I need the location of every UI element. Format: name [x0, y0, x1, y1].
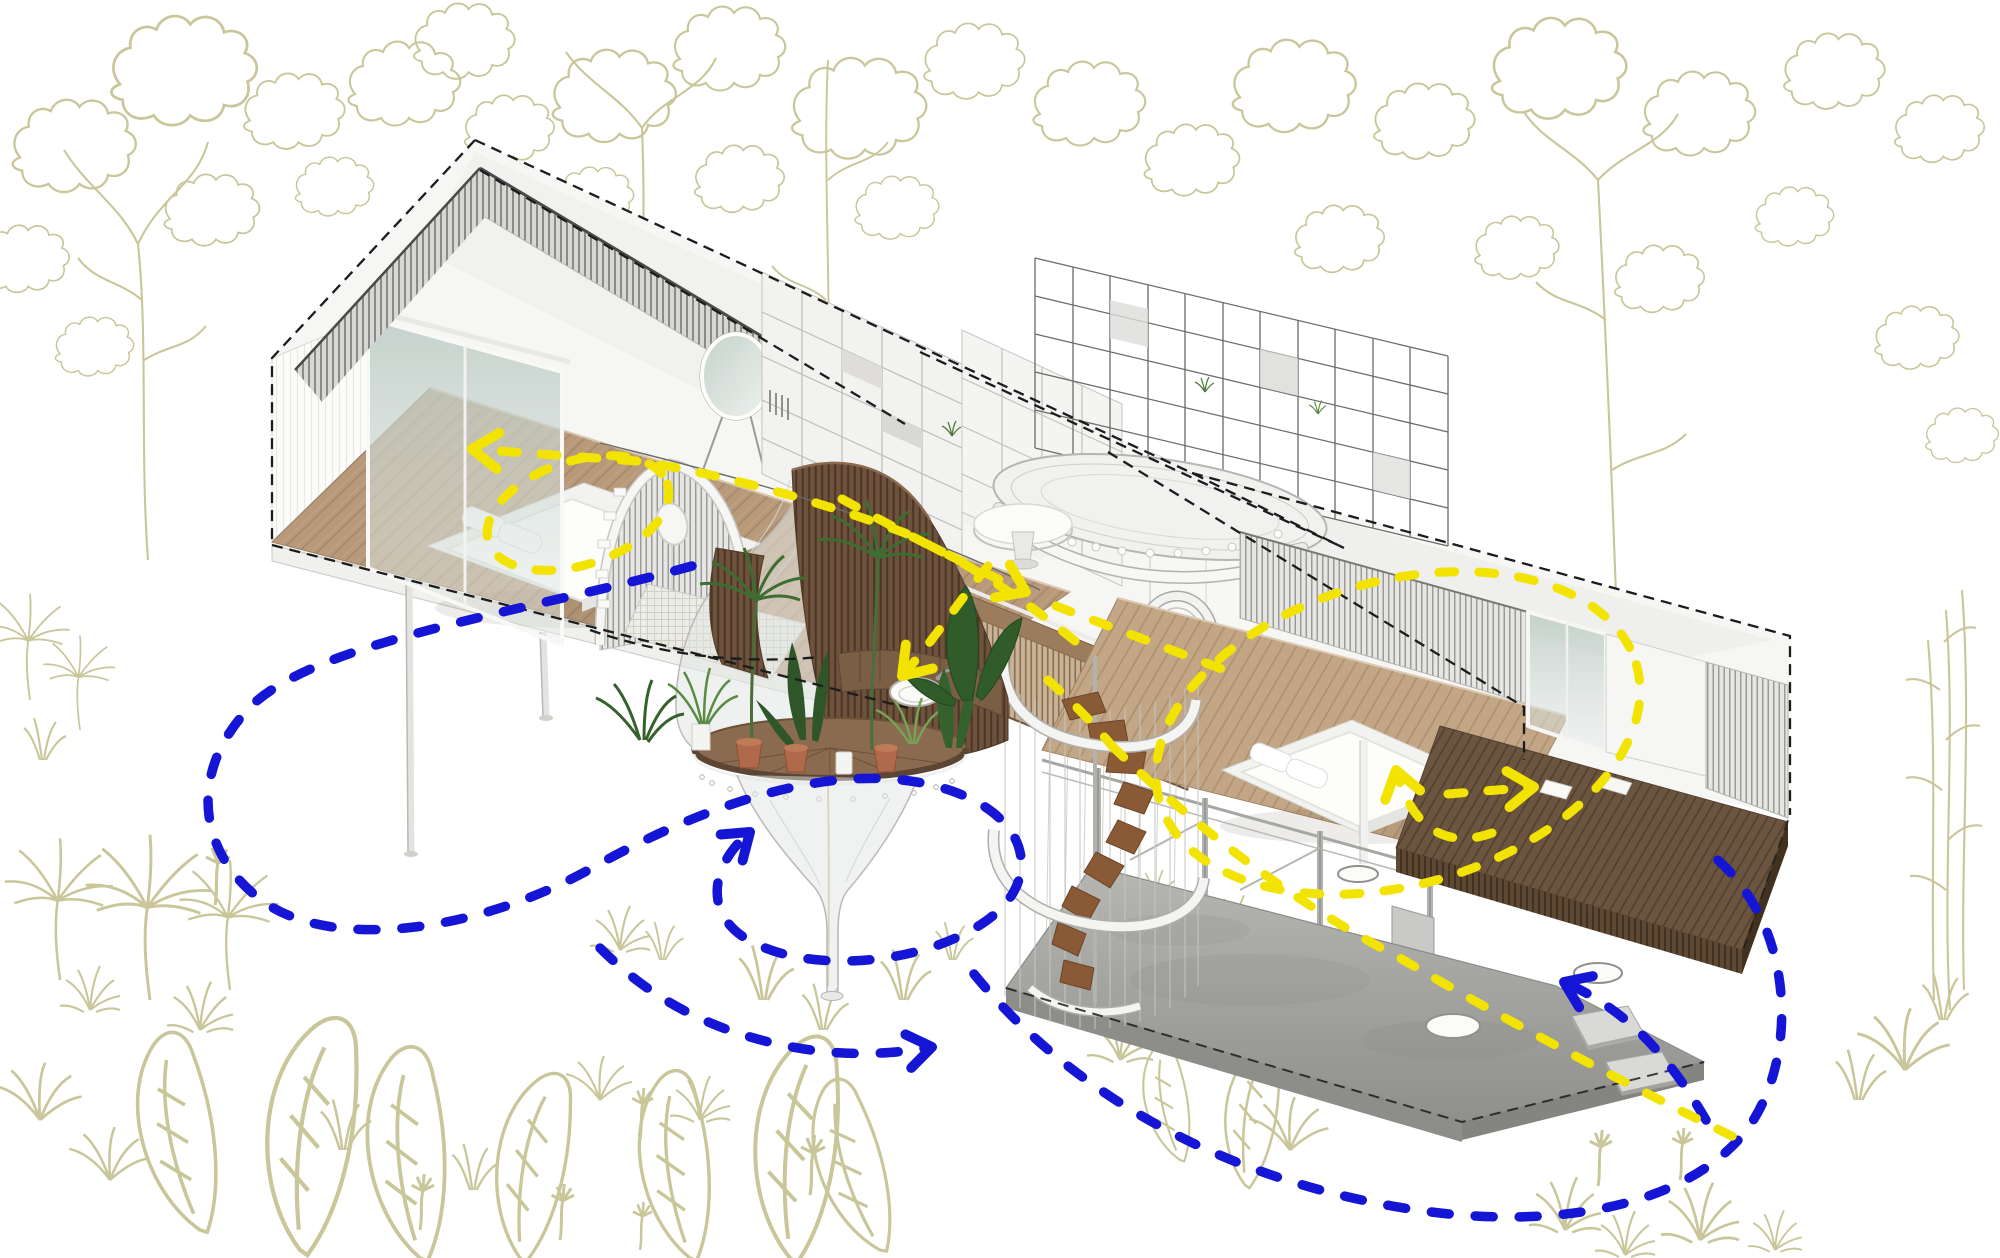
palms-mid-left: [0, 594, 115, 760]
sliding-glass-door-right: [1528, 612, 1606, 752]
diagram-canvas: [0, 0, 2000, 1258]
jungle-bottom-left: [0, 835, 652, 1258]
house: [272, 140, 1790, 1142]
plants-under-funnel: [566, 922, 973, 1258]
plant-right-edge: [1906, 590, 1982, 1010]
